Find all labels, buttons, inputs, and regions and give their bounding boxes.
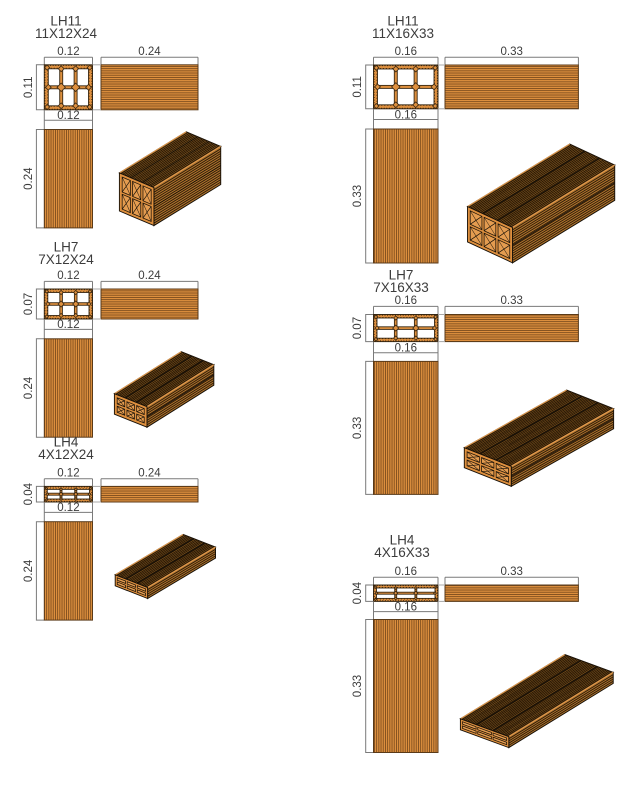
svg-text:0.12: 0.12: [57, 46, 79, 58]
svg-text:0.07: 0.07: [352, 317, 364, 339]
svg-text:0.07: 0.07: [23, 293, 35, 315]
svg-text:4X16X33: 4X16X33: [374, 545, 430, 560]
svg-text:0.11: 0.11: [23, 77, 35, 99]
svg-text:0.24: 0.24: [23, 167, 35, 190]
svg-text:0.33: 0.33: [501, 295, 523, 307]
svg-text:0.16: 0.16: [395, 601, 417, 613]
svg-text:11X12X24: 11X12X24: [35, 26, 98, 41]
svg-text:11X16X33: 11X16X33: [372, 26, 434, 41]
svg-text:0.16: 0.16: [395, 46, 417, 58]
svg-text:0.24: 0.24: [138, 46, 161, 58]
svg-text:0.04: 0.04: [352, 581, 364, 604]
svg-text:7X16X33: 7X16X33: [373, 280, 429, 295]
svg-text:0.04: 0.04: [23, 482, 35, 505]
svg-text:0.33: 0.33: [352, 185, 364, 207]
svg-text:0.33: 0.33: [501, 46, 523, 58]
svg-text:0.33: 0.33: [501, 566, 523, 578]
svg-text:0.16: 0.16: [395, 566, 417, 578]
svg-text:0.24: 0.24: [138, 270, 161, 282]
svg-text:0.24: 0.24: [138, 468, 161, 480]
svg-text:7X12X24: 7X12X24: [38, 252, 94, 267]
svg-text:0.12: 0.12: [57, 468, 79, 480]
svg-text:0.24: 0.24: [23, 559, 35, 582]
svg-text:0.16: 0.16: [395, 109, 417, 121]
svg-text:0.12: 0.12: [57, 502, 79, 514]
svg-text:0.16: 0.16: [395, 295, 417, 307]
svg-text:0.12: 0.12: [57, 110, 79, 122]
svg-text:0.12: 0.12: [57, 319, 79, 331]
svg-text:0.11: 0.11: [352, 76, 364, 98]
svg-text:0.24: 0.24: [23, 376, 35, 399]
svg-text:0.33: 0.33: [352, 417, 364, 439]
svg-text:4X12X24: 4X12X24: [38, 447, 94, 462]
svg-text:0.12: 0.12: [57, 270, 79, 282]
svg-text:0.16: 0.16: [395, 343, 417, 355]
svg-text:0.33: 0.33: [352, 675, 364, 697]
